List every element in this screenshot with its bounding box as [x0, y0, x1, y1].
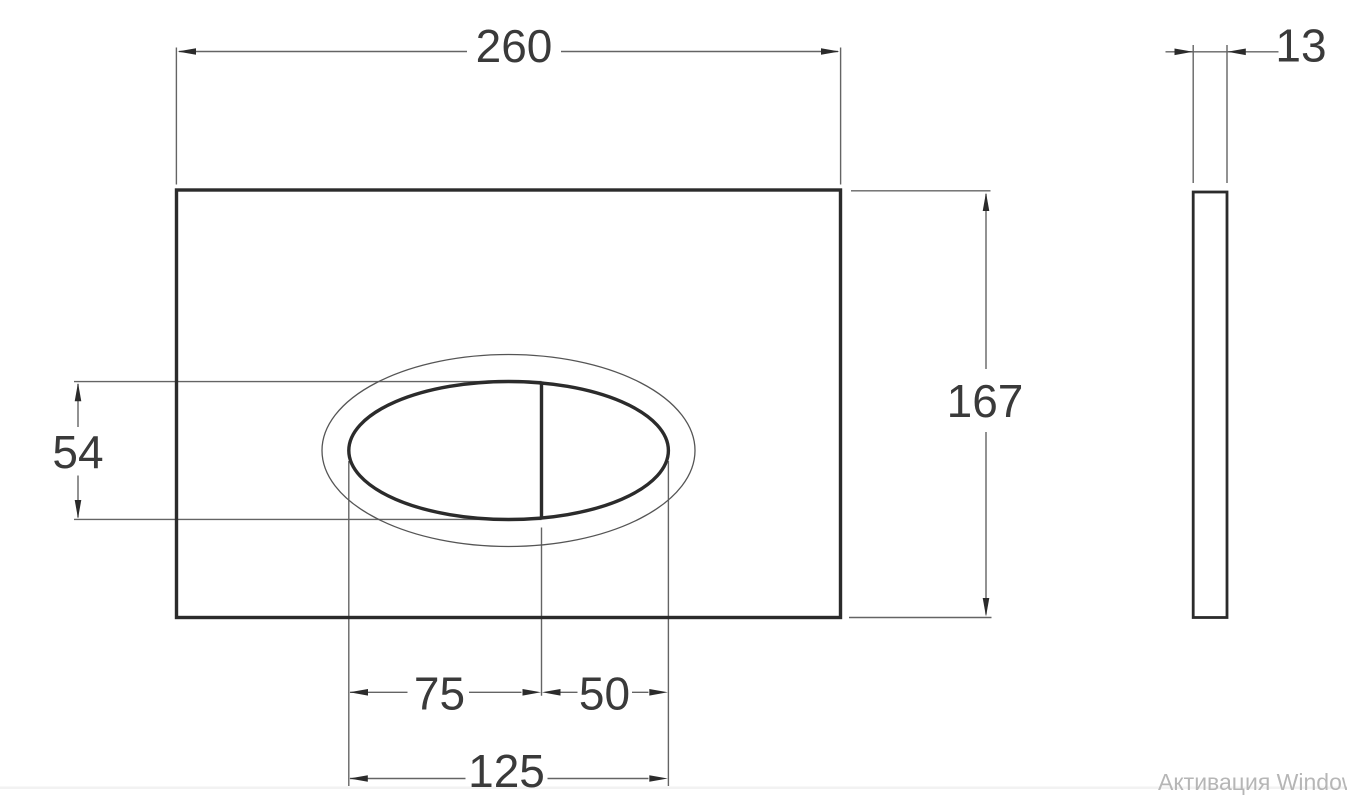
svg-text:75: 75 [414, 668, 465, 720]
svg-text:260: 260 [476, 20, 553, 72]
svg-text:167: 167 [947, 375, 1024, 427]
svg-text:13: 13 [1275, 20, 1326, 72]
svg-text:125: 125 [468, 745, 545, 789]
svg-text:54: 54 [52, 426, 103, 478]
svg-text:50: 50 [579, 668, 630, 720]
